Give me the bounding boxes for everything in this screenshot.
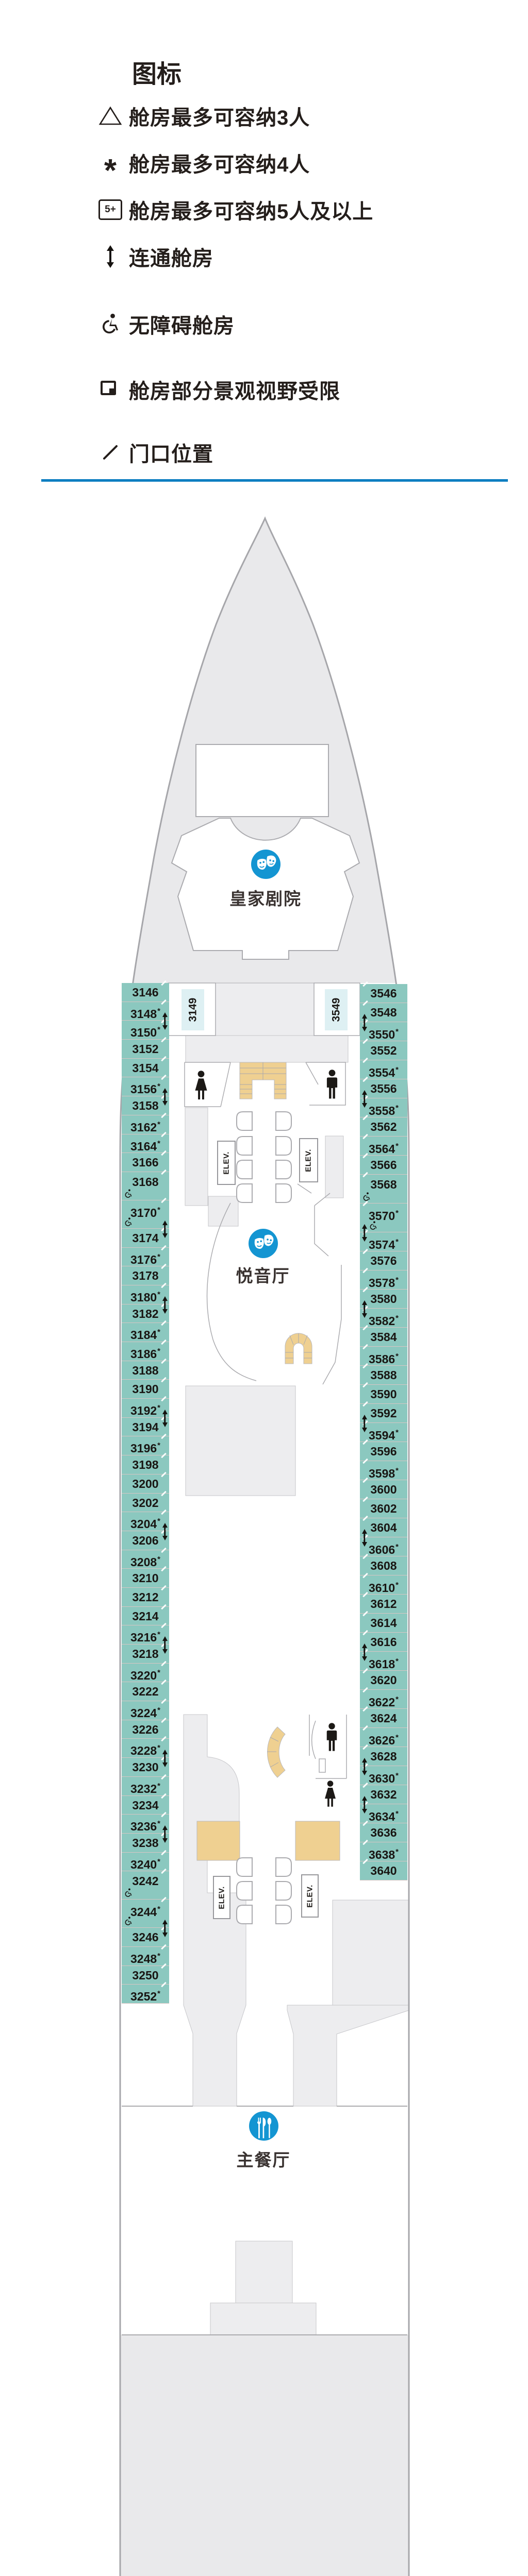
cabin-number: 3178 <box>122 1266 169 1285</box>
cabin-number: 3232* <box>122 1777 169 1799</box>
cabin-row[interactable]: 3248* <box>122 1947 169 1966</box>
cabin-number: 3176* <box>122 1248 169 1269</box>
cabin-row[interactable]: 3166 <box>122 1153 169 1172</box>
cabin-row[interactable]: 3190 <box>122 1380 169 1399</box>
port-cabin-column: 31463148*3150*315231543156*31583162*3164… <box>122 983 169 2004</box>
cabin-row[interactable]: 3162* <box>122 1115 169 1134</box>
mens-restroom-icon <box>325 1723 339 1755</box>
wheelchair-icon <box>124 1217 133 1227</box>
connect-arrow-icon <box>361 1796 367 1814</box>
cabin-row[interactable]: 3176* <box>122 1248 169 1267</box>
inner-cabin-3549[interactable]: 3549 <box>325 989 348 1030</box>
dining-utensils-icon <box>249 2111 278 2141</box>
cabin-number: 3196* <box>122 1436 169 1458</box>
cabin-row[interactable]: 3208* <box>122 1550 169 1569</box>
cabin-number: 3222 <box>122 1682 169 1701</box>
theater-masks-icon <box>251 850 280 879</box>
cabin-number: 3224* <box>122 1701 169 1723</box>
cabin-number: 3640 <box>360 1861 407 1880</box>
cabin-row[interactable]: 3178 <box>122 1266 169 1285</box>
cabin-number: 3568 <box>360 1175 407 1194</box>
cabin-row[interactable]: 3604 <box>360 1518 407 1537</box>
cabin-row[interactable]: 3568 <box>360 1175 407 1204</box>
cabin-row[interactable]: 3212 <box>122 1588 169 1607</box>
cabin-number: 3166 <box>122 1153 169 1172</box>
inner-cabin-number: 3149 <box>187 998 199 1022</box>
cabin-row[interactable]: 3188 <box>122 1361 169 1380</box>
music-hall-label: 悦音厅 <box>196 1262 330 1287</box>
wheelchair-icon <box>124 1189 133 1198</box>
connect-arrow-icon <box>162 1920 168 1937</box>
cabin-row[interactable]: 3580 <box>360 1290 407 1309</box>
cabin-row[interactable]: 3616 <box>360 1633 407 1652</box>
cabin-number: 3190 <box>122 1380 169 1399</box>
elevator-label: ELEV. <box>217 1141 236 1185</box>
cabin-row[interactable]: 3244* <box>122 1900 169 1928</box>
royal-theater-label: 皇家剧院 <box>199 885 333 910</box>
connect-arrow-icon <box>162 1523 168 1540</box>
cabin-row[interactable]: 3164* <box>122 1134 169 1154</box>
cabin-row[interactable]: 3236* <box>122 1815 169 1834</box>
cabin-row[interactable]: 3222 <box>122 1682 169 1701</box>
cabin-row[interactable]: 3170* <box>122 1200 169 1229</box>
cabin-row[interactable]: 3184* <box>122 1323 169 1342</box>
cabin-number: 3220* <box>122 1664 169 1685</box>
cabin-number: 3240* <box>122 1853 169 1874</box>
cabin-row[interactable]: 3252* <box>122 1985 169 2004</box>
connect-arrow-icon <box>361 1224 367 1242</box>
main-dining-label: 主餐厅 <box>196 2146 331 2171</box>
cabin-number: 3570* <box>360 1204 407 1226</box>
connect-arrow-icon <box>162 1088 168 1106</box>
cabin-row[interactable]: 3548 <box>360 1003 407 1022</box>
cabin-row[interactable]: 3250 <box>122 1966 169 1985</box>
cabin-row[interactable]: 3192* <box>122 1399 169 1418</box>
cabin-row[interactable]: 3186* <box>122 1342 169 1361</box>
cabin-number: 3208* <box>122 1550 169 1572</box>
cabin-row[interactable]: 3240* <box>122 1853 169 1872</box>
womens-restroom-icon <box>323 1781 338 1810</box>
cabin-row[interactable]: 3242 <box>122 1871 169 1900</box>
cabin-row[interactable]: 3210 <box>122 1569 169 1588</box>
cabin-row[interactable]: 3214 <box>122 1607 169 1626</box>
cabin-row[interactable]: 3148* <box>122 1002 169 1021</box>
cabin-row[interactable]: 3168 <box>122 1172 169 1200</box>
elevator-label: ELEV. <box>301 1874 319 1918</box>
cabin-row[interactable]: 3220* <box>122 1664 169 1683</box>
cabin-row[interactable]: 3640 <box>360 1861 407 1880</box>
cabin-row[interactable]: 3152 <box>122 1040 169 1059</box>
wheelchair-icon <box>124 1888 133 1897</box>
mens-restroom-icon <box>324 1070 340 1103</box>
connect-arrow-icon <box>361 1415 367 1432</box>
cabin-row[interactable]: 3232* <box>122 1777 169 1796</box>
cabin-row[interactable]: 3146 <box>122 983 169 1002</box>
starboard-cabin-column: 354635483550*35523554*35563558*35623564*… <box>360 984 407 1880</box>
inner-cabin-3149[interactable]: 3149 <box>181 989 204 1030</box>
cabin-row[interactable]: 3234 <box>122 1796 169 1815</box>
cabin-row[interactable]: 3154 <box>122 1059 169 1078</box>
connect-arrow-icon <box>162 1012 168 1030</box>
cabin-row[interactable]: 3556 <box>360 1079 407 1098</box>
connect-arrow-icon <box>162 1221 168 1238</box>
cabin-row[interactable]: 3224* <box>122 1701 169 1720</box>
elevator-label: ELEV. <box>213 1876 230 1919</box>
connect-arrow-icon <box>162 1636 168 1654</box>
wheelchair-icon <box>362 1192 371 1201</box>
connect-arrow-icon <box>162 1296 168 1314</box>
cabin-row[interactable]: 3226 <box>122 1720 169 1739</box>
cabin-number: 3164* <box>122 1134 169 1156</box>
connect-arrow-icon <box>361 1529 367 1547</box>
elevator-label: ELEV. <box>299 1138 318 1182</box>
womens-restroom-icon <box>193 1071 209 1104</box>
deck-plan-page: 图标 舱房最多可容纳3人*舱房最多可容纳4人5+舱房最多可容纳5人及以上连通舱房… <box>0 0 528 2576</box>
connect-arrow-icon <box>162 1410 168 1427</box>
connect-arrow-icon <box>361 1758 367 1775</box>
cabin-row[interactable]: 3198 <box>122 1455 169 1475</box>
connect-arrow-icon <box>361 1300 367 1318</box>
cabin-number: 3186* <box>122 1342 169 1364</box>
cabin-row[interactable]: 3216* <box>122 1625 169 1645</box>
cabin-number: 3146 <box>122 983 169 1002</box>
cabin-number: 3212 <box>122 1588 169 1607</box>
cabin-number: 3152 <box>122 1040 169 1059</box>
cabin-number: 3162* <box>122 1115 169 1137</box>
cabin-row[interactable]: 3180* <box>122 1285 169 1304</box>
cabin-number: 3198 <box>122 1455 169 1475</box>
cabin-number: 3252* <box>122 1985 169 2006</box>
connect-arrow-icon <box>361 1014 367 1031</box>
connect-arrow-icon <box>361 1090 367 1108</box>
cabin-row[interactable]: 3204* <box>122 1512 169 1531</box>
cabin-row[interactable]: 3156* <box>122 1077 169 1096</box>
cabin-row[interactable]: 3628 <box>360 1747 407 1766</box>
wheelchair-icon <box>124 1917 133 1926</box>
wheelchair-icon <box>369 1221 378 1230</box>
inner-cabin-number: 3549 <box>330 998 342 1022</box>
cabin-row[interactable]: 3632 <box>360 1785 407 1804</box>
cabin-row[interactable]: 3592 <box>360 1404 407 1423</box>
cabin-row[interactable]: 3200 <box>122 1475 169 1494</box>
connect-arrow-icon <box>162 1825 168 1843</box>
connect-arrow-icon <box>361 1643 367 1661</box>
connect-arrow-icon <box>162 1750 168 1767</box>
cabin-row[interactable]: 3570* <box>360 1204 407 1232</box>
cabin-number: 3184* <box>122 1323 169 1345</box>
cabin-number: 3248* <box>122 1947 169 1969</box>
music-hall-masks-icon <box>249 1229 278 1258</box>
cabin-row[interactable]: 3202 <box>122 1494 169 1513</box>
ship-outline <box>0 0 528 2576</box>
cabin-row[interactable]: 3196* <box>122 1436 169 1455</box>
cabin-row[interactable]: 3228* <box>122 1739 169 1758</box>
cabin-number: 3210 <box>122 1569 169 1588</box>
